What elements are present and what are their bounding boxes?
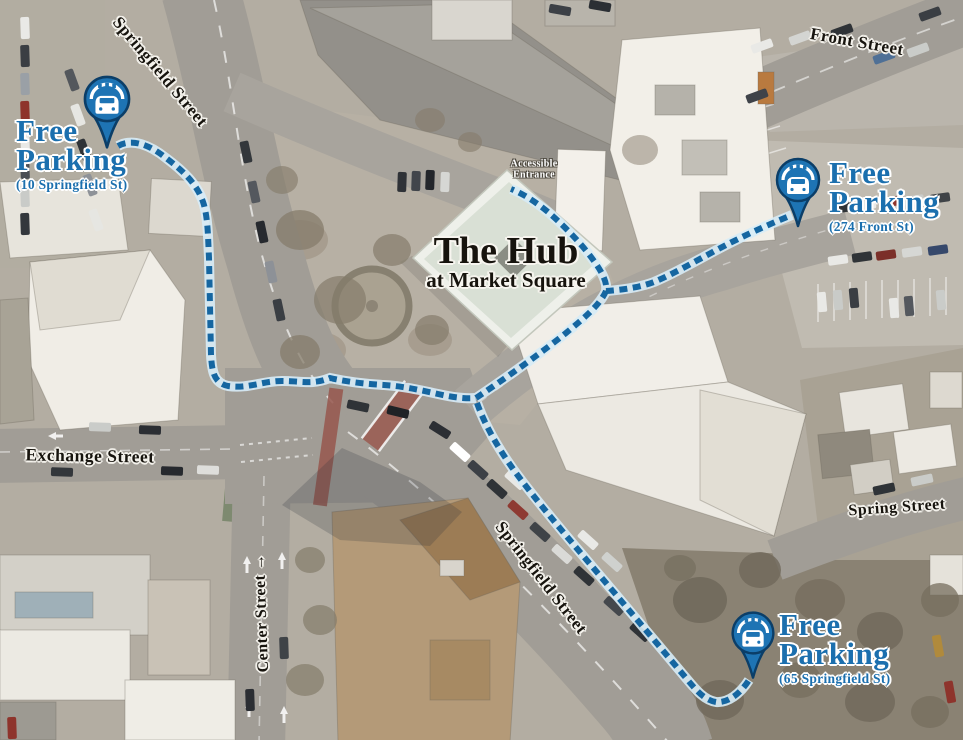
parking-map: Springfield Street Front Street Exchange… [0,0,963,740]
aerial-map [0,0,963,740]
road-exchange [0,452,245,456]
